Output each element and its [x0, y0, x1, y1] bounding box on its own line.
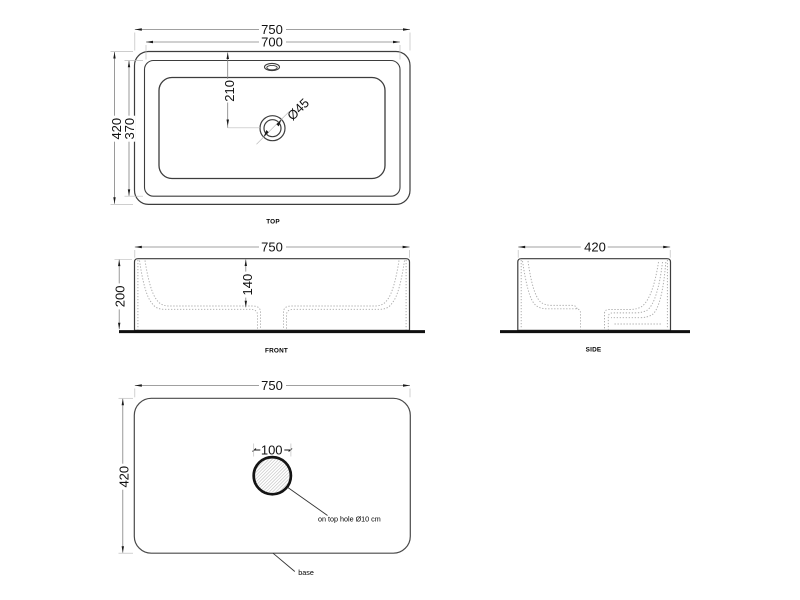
- svg-text:TOP: TOP: [266, 218, 280, 225]
- svg-text:370: 370: [122, 118, 137, 140]
- svg-text:100: 100: [261, 443, 283, 458]
- svg-text:210: 210: [222, 80, 237, 102]
- svg-text:140: 140: [240, 274, 255, 296]
- svg-text:420: 420: [116, 466, 131, 488]
- svg-text:on top hole Ø10 cm: on top hole Ø10 cm: [318, 514, 381, 523]
- svg-text:SIDE: SIDE: [586, 347, 602, 354]
- svg-text:420: 420: [584, 240, 606, 255]
- svg-text:FRONT: FRONT: [265, 347, 288, 354]
- svg-text:750: 750: [261, 378, 283, 393]
- svg-text:200: 200: [113, 286, 128, 308]
- svg-text:Ø45: Ø45: [284, 95, 312, 123]
- svg-text:700: 700: [261, 35, 283, 50]
- svg-text:750: 750: [261, 240, 283, 255]
- svg-text:base: base: [298, 568, 314, 577]
